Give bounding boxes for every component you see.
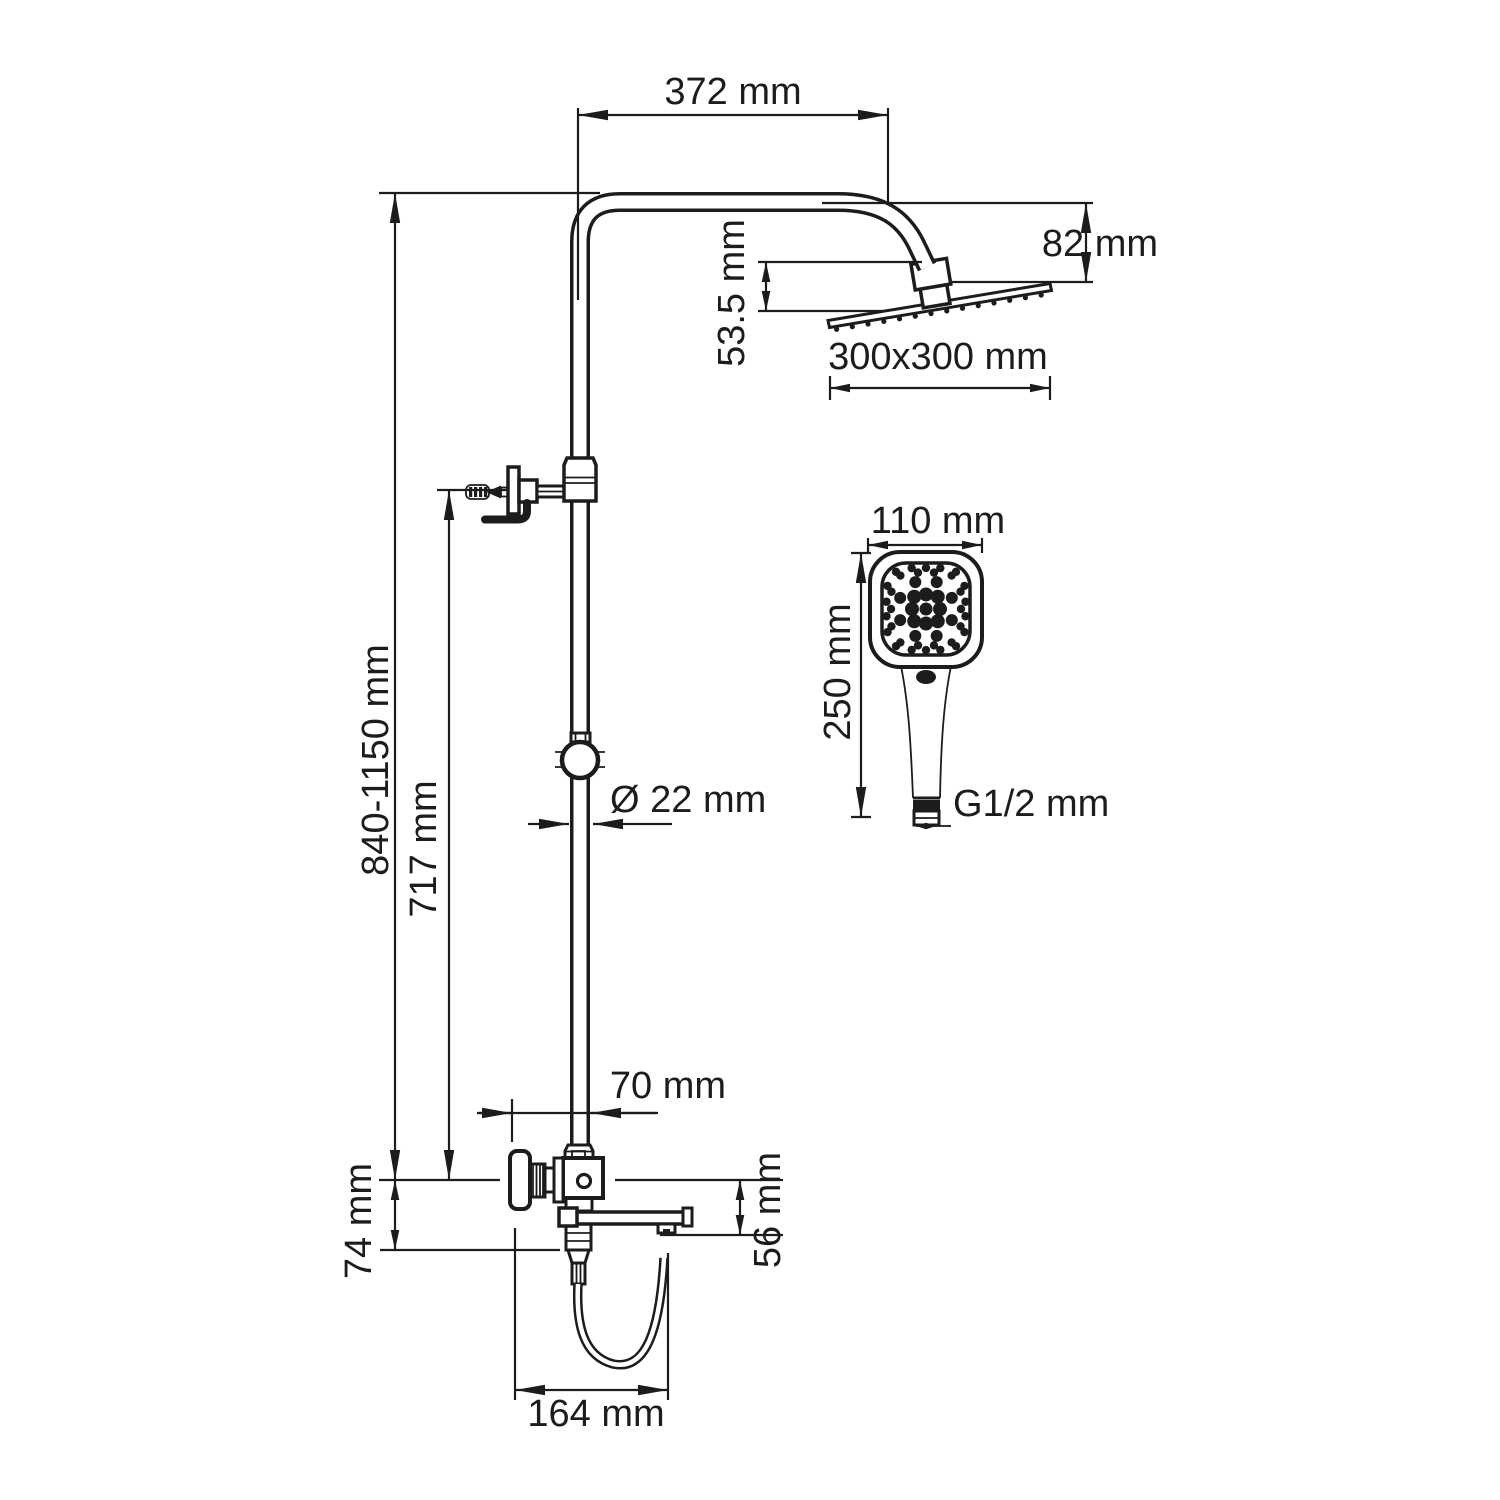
anchor-rib	[479, 487, 482, 497]
spray-dot	[961, 612, 969, 620]
overhead-shower-head	[828, 258, 1052, 332]
dim-column-height: 840-1150 mm	[355, 193, 600, 1180]
dim-label: 840-1150 mm	[355, 644, 397, 876]
spray-dot	[883, 582, 891, 590]
dim-spout-length: 164 mm	[515, 1228, 668, 1435]
dim-label: G1/2 mm	[953, 783, 1109, 825]
spray-dot	[931, 614, 945, 628]
dim-label: 250 mm	[817, 603, 859, 740]
dim-spout-offset: 70 mm	[477, 1065, 726, 1142]
spray-dot	[960, 628, 968, 636]
shower-system-dimension-drawing: 372 mm 82 mm 53.5 mm 300x300 mm 840-1150…	[0, 0, 1500, 1500]
spout-bar	[560, 1212, 691, 1224]
spray-dot	[957, 605, 965, 613]
spray-dot	[887, 605, 895, 613]
dim-label: 56 mm	[747, 1152, 789, 1268]
hand-shower-connector-band	[913, 800, 940, 811]
hose-nut	[566, 1224, 591, 1250]
mode-button	[916, 670, 936, 684]
spray-dot	[905, 602, 919, 616]
dim-label: 372 mm	[664, 71, 801, 113]
dim-head-size: 300x300 mm	[828, 336, 1050, 400]
spray-dot	[919, 587, 933, 601]
slider-knob	[562, 742, 598, 778]
bracket-block	[519, 480, 537, 502]
dim-hand-shower-width: 110 mm	[868, 500, 1005, 553]
spray-dot	[931, 576, 943, 588]
spray-dot	[882, 598, 890, 606]
valve-screw	[578, 1175, 591, 1188]
spray-dot	[960, 582, 968, 590]
spray-dot	[892, 642, 900, 650]
spray-dot	[894, 592, 906, 604]
dim-label: 717 mm	[403, 780, 445, 917]
slider-diverter	[555, 733, 605, 778]
handle-knob	[510, 1151, 530, 1209]
spray-dot	[922, 646, 930, 654]
spray-dot	[909, 630, 921, 642]
dim-ext-lines	[515, 1228, 668, 1400]
spray-dot	[894, 614, 906, 626]
spray-dot	[883, 628, 891, 636]
dim-hand-shower-thread: G1/2 mm	[916, 783, 1109, 826]
hose-interior	[578, 1258, 664, 1365]
spray-dot	[907, 564, 915, 572]
spray-dot	[907, 646, 915, 654]
mixer-assembly	[510, 1145, 692, 1365]
dim-ext-lines	[758, 262, 922, 311]
anchor-rib	[474, 487, 477, 497]
spray-dot	[933, 602, 947, 616]
technical-drawing-page: 372 mm 82 mm 53.5 mm 300x300 mm 840-1150…	[0, 0, 1500, 1500]
dim-label: Ø 22 mm	[610, 779, 766, 821]
handle-left-edge	[901, 666, 913, 798]
hose-cone	[568, 1250, 589, 1263]
spray-dot	[931, 590, 945, 604]
dim-label: 70 mm	[610, 1065, 726, 1107]
hose-tail	[572, 1263, 585, 1284]
spray-dot	[936, 564, 944, 572]
dim-label: 110 mm	[871, 500, 1005, 542]
spray-dot	[961, 598, 969, 606]
spray-dot	[922, 564, 930, 572]
spout-wall-cap	[559, 1208, 577, 1226]
spray-dot	[919, 617, 933, 631]
spray-dot	[882, 612, 890, 620]
dim-label: 53.5 mm	[711, 219, 753, 367]
dim-label: 300x300 mm	[828, 336, 1048, 378]
spray-dot	[946, 614, 958, 626]
spray-dot	[931, 630, 943, 642]
spout-end-cap	[683, 1208, 692, 1226]
anchor-rib	[469, 487, 472, 497]
spray-dot	[907, 590, 921, 604]
dim-bracket-height: 717 mm	[403, 490, 508, 1180]
spray-dot	[952, 568, 960, 576]
spray-dot	[936, 646, 944, 654]
dim-label: 164 mm	[527, 1393, 664, 1435]
dim-label: 74 mm	[338, 1163, 380, 1279]
spout-aerator-screen	[663, 1229, 670, 1233]
spray-dot	[909, 576, 921, 588]
dim-label: 82 mm	[1042, 223, 1158, 265]
spray-dot	[946, 592, 958, 604]
dim-hand-shower-length: 250 mm	[817, 553, 871, 817]
handle-right-edge	[940, 666, 951, 798]
spray-dot	[892, 568, 900, 576]
dim-pipe-diameter: Ø 22 mm	[528, 779, 766, 824]
spray-dot	[920, 603, 933, 616]
joint-lower-block	[920, 285, 950, 308]
dim-spout-drop: 56 mm	[615, 1152, 789, 1268]
spray-dot	[907, 614, 921, 628]
spray-dot	[952, 642, 960, 650]
pipe-collar	[564, 458, 596, 501]
